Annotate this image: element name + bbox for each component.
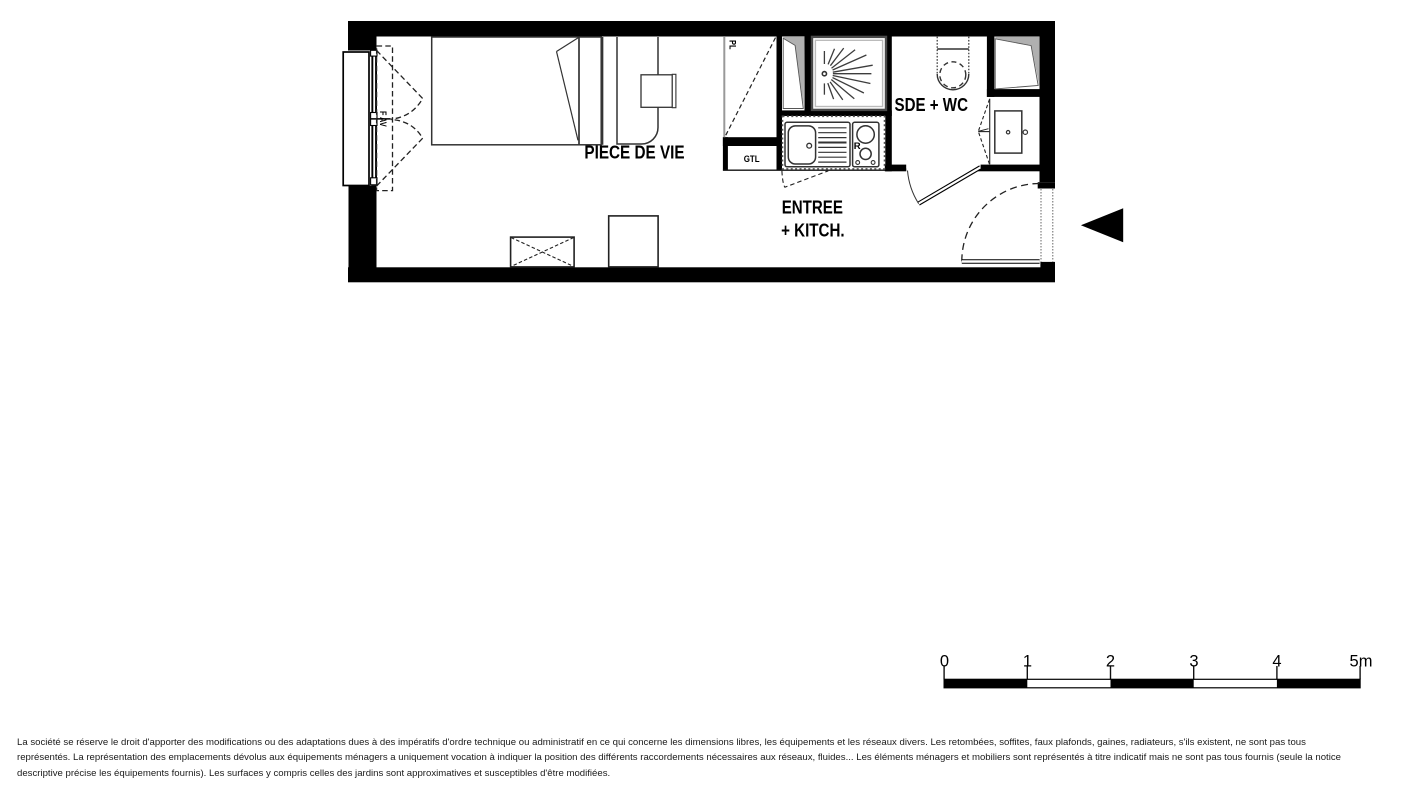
- svg-text:0: 0: [940, 653, 949, 671]
- svg-text:F AV: F AV: [377, 111, 388, 127]
- svg-text:4: 4: [1272, 653, 1281, 671]
- svg-text:R: R: [854, 141, 861, 152]
- svg-text:ENTREE: ENTREE: [782, 198, 843, 218]
- svg-text:PL: PL: [726, 40, 737, 50]
- svg-text:GTL: GTL: [744, 154, 760, 165]
- svg-text:3: 3: [1189, 653, 1198, 671]
- svg-text:+ KITCH.: + KITCH.: [781, 221, 845, 241]
- svg-text:1: 1: [1023, 653, 1032, 671]
- svg-text:5m: 5m: [1350, 653, 1373, 671]
- svg-text:SDE + WC: SDE + WC: [895, 95, 969, 115]
- svg-text:2: 2: [1106, 653, 1115, 671]
- svg-text:PIECE DE VIE: PIECE DE VIE: [584, 142, 684, 162]
